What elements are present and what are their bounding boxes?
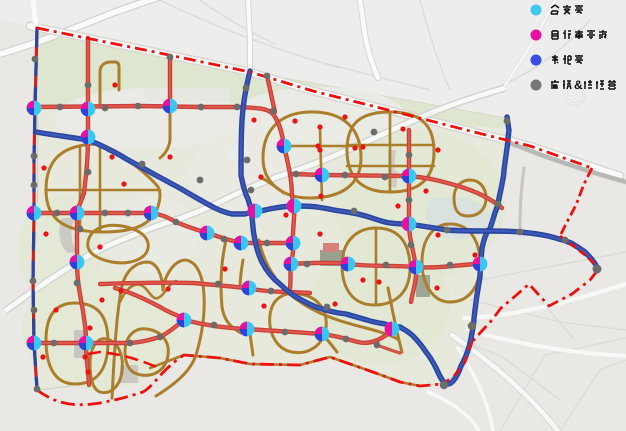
svg-text:&: & [574,78,583,92]
